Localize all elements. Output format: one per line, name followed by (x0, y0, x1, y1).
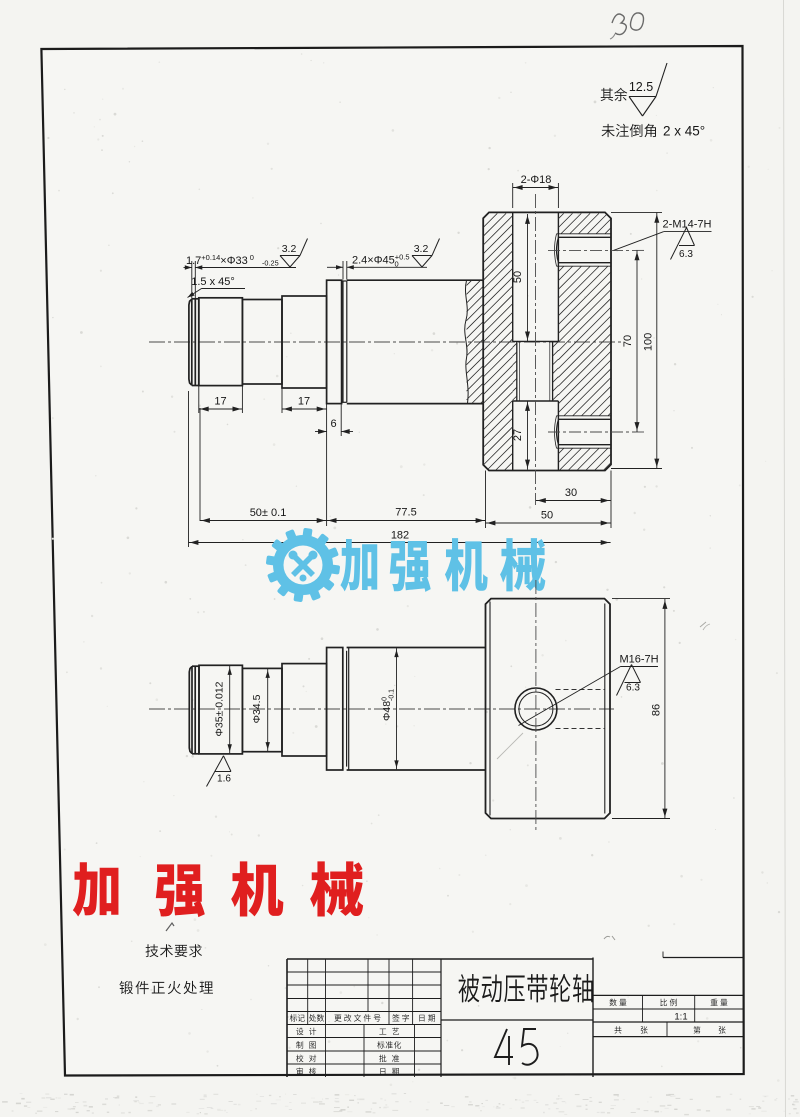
svg-text:2-Φ18: 2-Φ18 (521, 174, 552, 186)
svg-text:-0.25: -0.25 (262, 259, 279, 268)
svg-text:17: 17 (298, 396, 310, 408)
svg-text:12.5: 12.5 (629, 80, 653, 94)
svg-text:1.7+0.14×Φ33 0: 1.7+0.14×Φ33 0 (186, 253, 254, 267)
svg-text:1:1: 1:1 (674, 1012, 687, 1023)
svg-text:86: 86 (651, 704, 663, 716)
svg-text:6.3: 6.3 (626, 683, 640, 694)
svg-text:6: 6 (330, 418, 336, 430)
svg-text:Φ34.5: Φ34.5 (251, 694, 263, 723)
svg-text:Φ35± 0.012: Φ35± 0.012 (214, 681, 226, 736)
svg-text:182: 182 (391, 530, 409, 542)
svg-text:3.2: 3.2 (414, 243, 429, 255)
svg-text:70: 70 (622, 335, 634, 347)
svg-text:27: 27 (512, 429, 524, 441)
svg-text:50± 0.1: 50± 0.1 (250, 507, 287, 519)
svg-text:1.5 x 45°: 1.5 x 45° (191, 276, 235, 288)
svg-text:6.3: 6.3 (679, 249, 693, 260)
svg-text:M16-7H: M16-7H (619, 654, 658, 666)
svg-text:50: 50 (512, 271, 524, 283)
svg-text:3.2: 3.2 (282, 243, 297, 255)
svg-text:17: 17 (214, 396, 226, 408)
svg-text:1.6: 1.6 (217, 774, 231, 785)
svg-text:50: 50 (541, 510, 553, 522)
svg-text:100: 100 (643, 333, 655, 351)
svg-text:30: 30 (565, 487, 577, 499)
svg-text:-0.1: -0.1 (389, 689, 396, 701)
svg-text:77.5: 77.5 (395, 507, 416, 519)
svg-text:2 x 45°: 2 x 45° (663, 124, 705, 139)
